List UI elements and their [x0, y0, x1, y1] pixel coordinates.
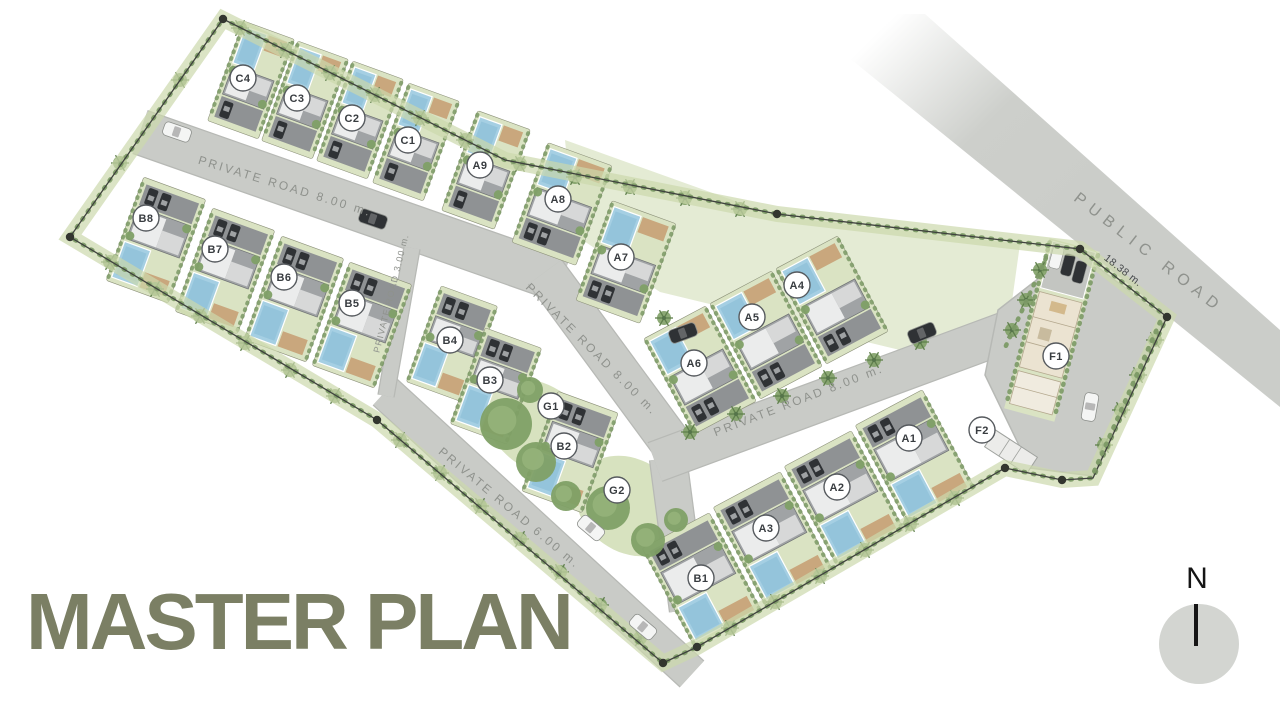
palm-tree [655, 310, 673, 326]
plot-marker-label: B8 [138, 213, 153, 225]
plot-marker-A5[interactable]: A5 [739, 304, 765, 330]
plot-marker-A1[interactable]: A1 [896, 425, 922, 451]
palm-trunk [688, 430, 692, 434]
canopy-tree-highlight [522, 448, 544, 470]
plot-marker-C1[interactable]: C1 [395, 127, 421, 153]
plot-marker-F2[interactable]: F2 [969, 417, 995, 443]
palm-trunk [662, 316, 666, 320]
compass-circle [1159, 604, 1239, 684]
plot-marker-C2[interactable]: C2 [339, 105, 365, 131]
canopy-tree-highlight [556, 486, 573, 503]
boundary-node [1076, 245, 1084, 253]
plot-marker-label: A7 [613, 252, 628, 264]
plot-marker-B1[interactable]: B1 [688, 565, 714, 591]
plot-marker-G2[interactable]: G2 [604, 477, 630, 503]
compass-north-label: N [1186, 562, 1208, 595]
plot-marker-label: B5 [344, 298, 359, 310]
boundary-node [66, 233, 74, 241]
plot-marker-B8[interactable]: B8 [133, 205, 159, 231]
plot-marker-A7[interactable]: A7 [608, 244, 634, 270]
plot-marker-label: B7 [207, 244, 222, 256]
plot-marker-B5[interactable]: B5 [339, 290, 365, 316]
plot-marker-B3[interactable]: B3 [477, 367, 503, 393]
canopy-tree-highlight [488, 406, 517, 435]
plot-marker-label: F2 [975, 425, 989, 437]
plot-marker-label: A2 [829, 482, 844, 494]
master-plan-page: PRIVATE ROAD 8.00 m.PRIVATE ROAD 8.00 m.… [0, 0, 1280, 708]
plot-marker-label: A6 [686, 358, 701, 370]
boundary-node [1001, 464, 1009, 472]
boundary-node [1058, 476, 1066, 484]
canopy-tree-highlight [521, 381, 535, 395]
canopy-tree-highlight [636, 528, 655, 547]
plot-marker-label: B6 [276, 272, 291, 284]
plot-marker-B6[interactable]: B6 [271, 264, 297, 290]
plot-marker-label: A1 [901, 433, 916, 445]
plot-marker-B2[interactable]: B2 [551, 433, 577, 459]
palm-trunk [780, 394, 784, 398]
plot-marker-label: B4 [442, 335, 457, 347]
plot-marker-label: A8 [550, 194, 565, 206]
plot-marker-label: C1 [400, 135, 415, 147]
plot-marker-A8[interactable]: A8 [545, 186, 571, 212]
plot-marker-A4[interactable]: A4 [784, 272, 810, 298]
plot-marker-label: C4 [235, 73, 250, 85]
boundary-node [219, 15, 227, 23]
boundary-node [773, 210, 781, 218]
boundary-node [1163, 313, 1171, 321]
plot-marker-C3[interactable]: C3 [284, 85, 310, 111]
palm-trunk [872, 358, 876, 362]
plot-marker-label: G1 [543, 401, 559, 413]
plot-marker-B4[interactable]: B4 [437, 327, 463, 353]
plot-marker-label: B1 [693, 573, 708, 585]
plot-marker-A6[interactable]: A6 [681, 350, 707, 376]
compass: N [1159, 562, 1239, 684]
boundary-node [693, 643, 701, 651]
plot-marker-A2[interactable]: A2 [824, 474, 850, 500]
plot-marker-label: B3 [482, 375, 497, 387]
canopy-tree-highlight [668, 512, 681, 525]
page-title: MASTER PLAN [26, 582, 571, 662]
boundary-node [373, 416, 381, 424]
plot-marker-A3[interactable]: A3 [753, 515, 779, 541]
plot-marker-A9[interactable]: A9 [467, 152, 493, 178]
plot-marker-label: C3 [289, 93, 304, 105]
plot-marker-label: A9 [472, 160, 487, 172]
plot-marker-label: A5 [744, 312, 759, 324]
plot-marker-label: G2 [609, 485, 625, 497]
plot-marker-label: A3 [758, 523, 773, 535]
plot-marker-label: F1 [1049, 351, 1063, 363]
plot-marker-B7[interactable]: B7 [202, 236, 228, 262]
plot-marker-G1[interactable]: G1 [538, 393, 564, 419]
plot-marker-C4[interactable]: C4 [230, 65, 256, 91]
boundary-node [659, 659, 667, 667]
plot-marker-label: B2 [556, 441, 571, 453]
plot-marker-F1[interactable]: F1 [1043, 343, 1069, 369]
palm-trunk [826, 376, 830, 380]
plot-marker-label: A4 [789, 280, 804, 292]
plot-marker-label: C2 [344, 113, 359, 125]
